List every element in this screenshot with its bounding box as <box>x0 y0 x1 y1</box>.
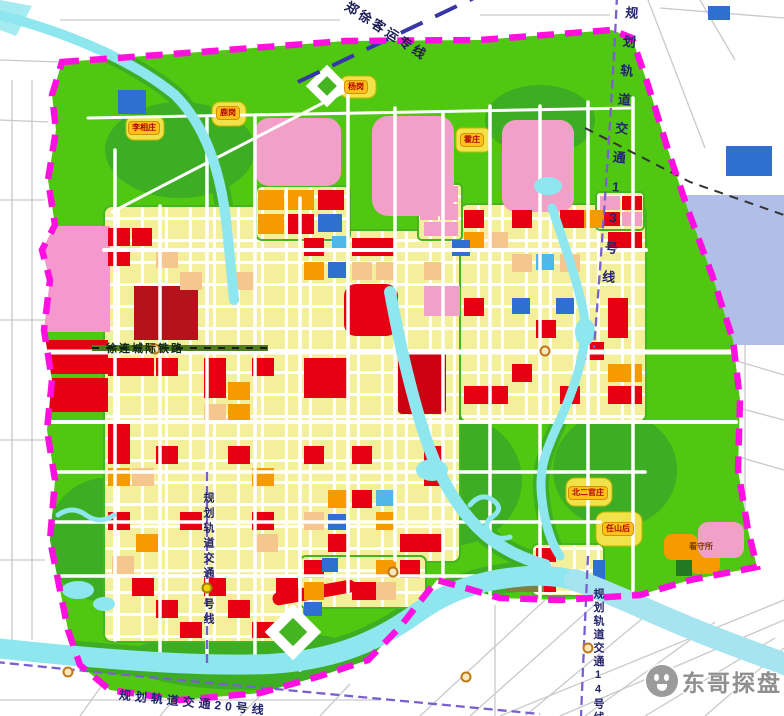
watermark-logo-icon <box>646 665 678 697</box>
watermark: 东哥探盘 <box>646 664 782 698</box>
planning-map: 郑徐客运专线 规划轨道交通13号线 规划轨道交通14号线 规划轨道交通20号线 … <box>0 0 784 716</box>
watermark-text: 东哥探盘 <box>682 664 782 698</box>
planning-map-canvas <box>0 0 784 716</box>
parcel-overlay-maroon <box>134 286 198 340</box>
